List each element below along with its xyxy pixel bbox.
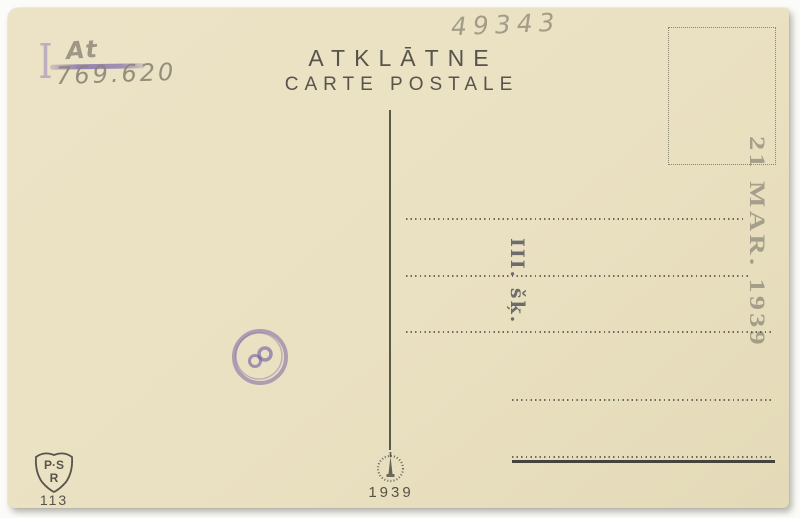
address-base-line <box>512 460 775 463</box>
printer-year: 1939 <box>360 484 422 501</box>
date-handstamp: 21 MAR. 1939 <box>735 136 769 325</box>
publisher-card-number: 113 <box>28 492 80 508</box>
address-line-1 <box>406 218 744 220</box>
address-line-2 <box>406 275 748 277</box>
address-line-3 <box>406 331 772 333</box>
address-line-5 <box>512 456 772 458</box>
postcard-back: ATKLĀTNE CARTE POSTALE I At 769.620 4934… <box>8 8 789 508</box>
pencil-top-number: 49343 <box>450 8 561 42</box>
class-handstamp: III. šķ. <box>488 238 528 328</box>
divider-line <box>389 110 391 450</box>
printer-emblem-icon <box>374 452 407 485</box>
shield-text-top: P·S <box>44 458 64 472</box>
circular-purple-stamp-icon <box>222 319 292 389</box>
shield-text-bottom: R <box>50 471 59 485</box>
publisher-shield-icon: P·S R <box>33 448 75 494</box>
pencil-catalog-number: 769.620 <box>56 58 177 90</box>
roman-numeral-stamp: I <box>38 34 52 90</box>
address-line-4 <box>512 399 772 401</box>
